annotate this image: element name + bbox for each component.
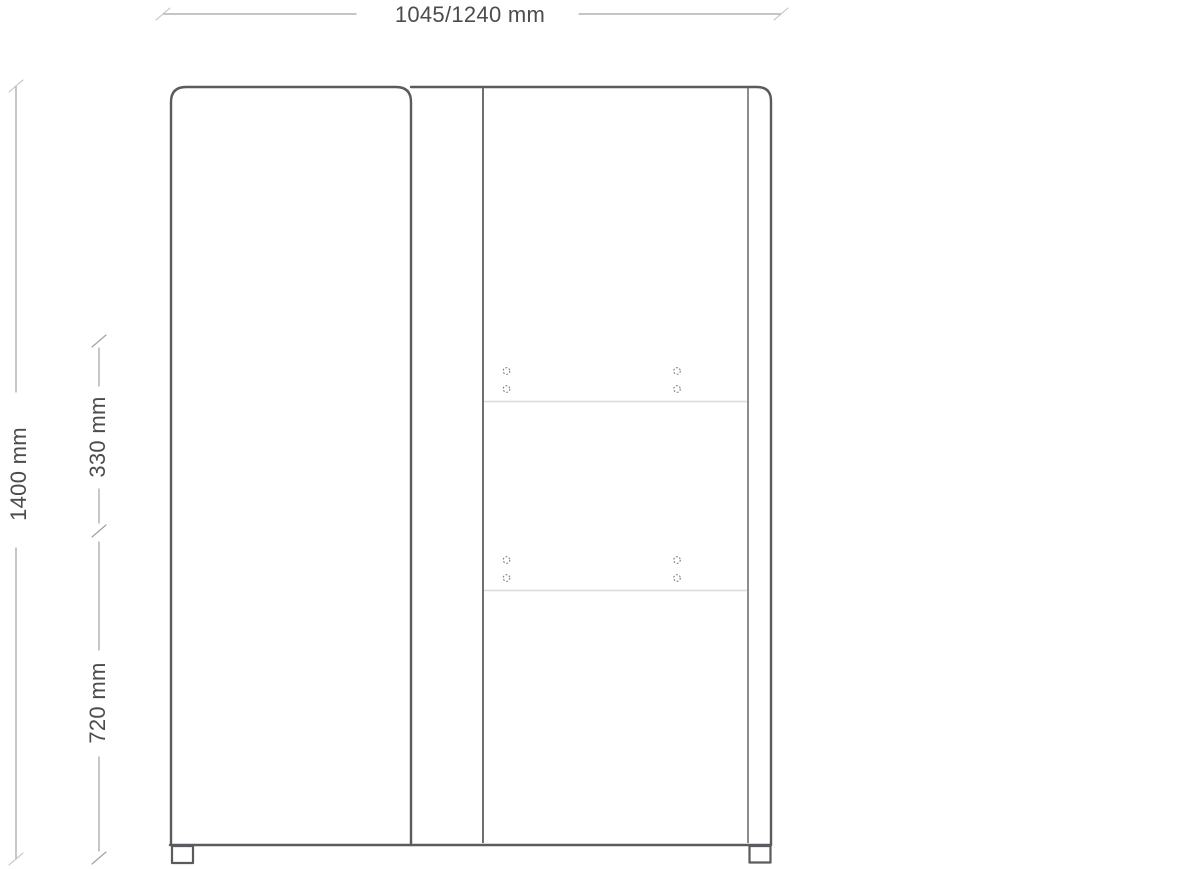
cabinet-top-and-right-edge [411, 87, 771, 845]
faint-shelf-lines-group [484, 402, 747, 591]
mounting-hole-bottom-right-2 [674, 575, 681, 582]
width-dimension-label: 1045/1240 mm [395, 2, 545, 28]
left-door-panel [171, 87, 411, 845]
mounting-hole-top-left-2 [503, 386, 510, 393]
mounting-hole-top-left-1 [503, 368, 510, 375]
tick-mark-middle [92, 525, 106, 537]
mounting-hole-top-right-1 [674, 368, 681, 375]
cabinet-outline-group [170, 87, 771, 863]
wardrobe-drawing [0, 0, 1199, 869]
mounting-holes-group [503, 368, 680, 582]
mount-spacing-dimension-label: 330 mm [85, 396, 111, 477]
mounting-hole-bottom-left-2 [503, 575, 510, 582]
mounting-hole-bottom-right-1 [674, 557, 681, 564]
faint-ticks-group [9, 8, 788, 865]
right-foot [750, 846, 771, 863]
dimension-lines-group [92, 14, 781, 864]
tick-mark-330-top [92, 335, 106, 347]
lower-height-dimension-label: 720 mm [85, 662, 111, 743]
tick-mark-720-bottom [92, 852, 106, 864]
mounting-hole-bottom-left-1 [503, 557, 510, 564]
dimension-drawing-canvas: 1045/1240 mm 1400 mm 330 mm 720 mm [0, 0, 1199, 869]
total-height-dimension-label: 1400 mm [6, 427, 32, 521]
left-foot [172, 846, 193, 863]
mounting-hole-top-right-2 [674, 386, 681, 393]
inner-panel-lines-group [483, 88, 748, 843]
